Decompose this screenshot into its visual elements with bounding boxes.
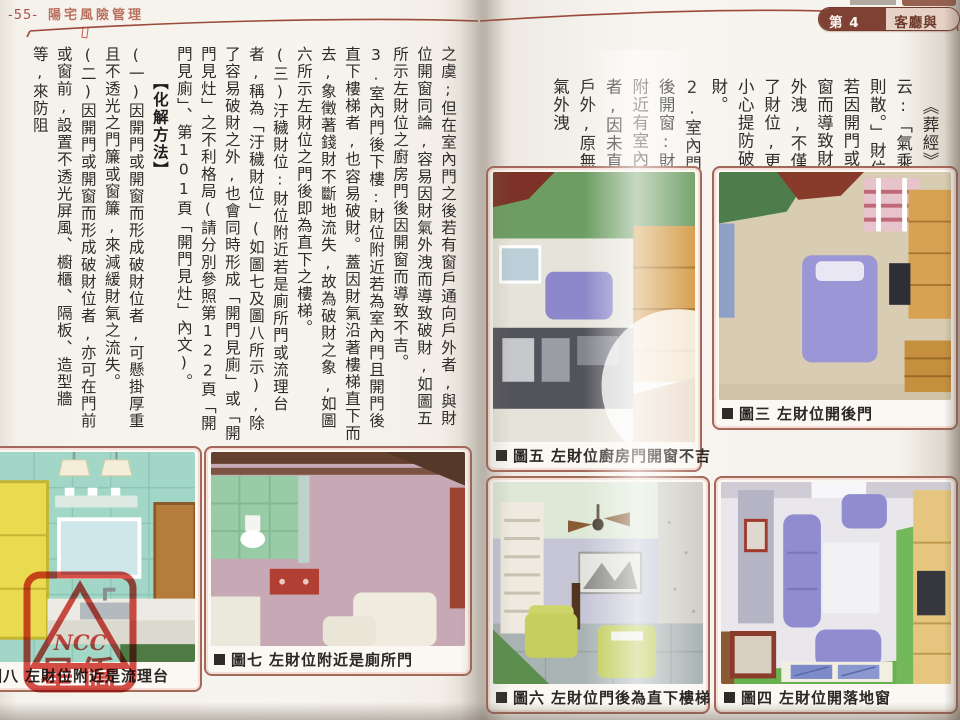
- figure-title: 左財位門後為直下樓梯: [551, 687, 711, 708]
- figure-title: 左財位開落地窗: [779, 687, 891, 708]
- caption-square-icon: [496, 450, 507, 461]
- paragraph: (三)汙穢財位:財位附近若是廁所門或流理台者,稱為「汙穢財位」(如圖七及圖八所示…: [172, 46, 292, 444]
- caption-square-icon: [724, 692, 735, 703]
- room-render-kitchen-window: [493, 172, 695, 442]
- caption-square-icon: [722, 408, 733, 419]
- page-top-fragment: [902, 0, 956, 6]
- figure-title: 左財位附近是廁所門: [269, 649, 413, 670]
- figure-4: 圖四 左財位開落地窗: [714, 476, 958, 714]
- figure-title: 左財位開後門: [777, 403, 873, 424]
- figure-title: 左財位附近是流理台: [25, 665, 169, 686]
- figure-label: 圖八: [0, 665, 19, 686]
- room-render-back-door: [719, 172, 951, 400]
- header-rule: [0, 0, 960, 44]
- figure-3: 圖三 左財位開後門: [712, 166, 958, 430]
- figure-label: 圖七: [231, 649, 263, 670]
- room-render-toilet-door: [211, 452, 465, 646]
- left-page-header: -55- 陽宅風險管理: [8, 4, 144, 23]
- room-render-stairs: [493, 482, 703, 684]
- figure-caption: 圖三 左財位開後門: [719, 400, 951, 424]
- figure-caption: 圖八 左財位附近是流理台: [0, 662, 195, 686]
- book-spread: -55- 陽宅風險管理 第 4 單元 客廳與書房 之虞;但在室內門之後若有窗戶通…: [0, 0, 960, 720]
- caption-square-icon: [496, 692, 507, 703]
- page-top-fragment: [850, 0, 896, 5]
- figure-caption: 圖四 左財位開落地窗: [721, 684, 951, 708]
- unit-badge: 第 4 單元 客廳與書房: [818, 7, 960, 31]
- paragraph: (二)因開門或開窗而形成破財位者,亦可在門前或窗前,設置不透光屏風、櫥櫃、隔板、…: [28, 46, 100, 444]
- figure-label: 圖五: [513, 445, 545, 466]
- figure-label: 圖四: [741, 687, 773, 708]
- figure-caption: 圖六 左財位門後為直下樓梯: [493, 684, 703, 708]
- left-page-text: 之虞;但在室內門之後若有窗戶通向戶外者,與財位開窗同論,容易因財氣外洩而導致破財…: [26, 46, 460, 444]
- figure-8: 圖八 左財位附近是流理台: [0, 446, 202, 692]
- room-render-kitchen-counter: [0, 452, 195, 662]
- figure-caption: 圖七 左財位附近是廁所門: [211, 646, 465, 670]
- section-heading: 【化解方法】: [148, 46, 172, 444]
- caption-square-icon: [214, 654, 225, 665]
- unit-number-label: 第 4 單元: [819, 8, 886, 30]
- figure-caption: 圖五 左財位廚房門開窗不吉: [493, 442, 695, 466]
- page-number: -55-: [8, 8, 38, 23]
- unit-title-label: 客廳與書房: [886, 8, 959, 30]
- paragraph: 之虞;但在室內門之後若有窗戶通向戶外者,與財位開窗同論,容易因財氣外洩而導致破財…: [388, 46, 460, 444]
- figure-5: 圖五 左財位廚房門開窗不吉: [486, 166, 702, 472]
- figure-title: 左財位廚房門開窗不吉: [551, 445, 711, 466]
- figure-label: 圖六: [513, 687, 545, 708]
- figure-label: 圖三: [739, 403, 771, 424]
- paragraph: (一)因開門或開窗而形成破財位者,可懸掛厚重且不透光之門簾或窗簾,來減緩財氣之流…: [100, 46, 148, 444]
- room-render-floor-window: [721, 482, 951, 684]
- book-title: 陽宅風險管理: [48, 4, 144, 23]
- figure-7: 圖七 左財位附近是廁所門: [204, 446, 472, 676]
- figure-6: 圖六 左財位門後為直下樓梯: [486, 476, 710, 714]
- paragraph: 3.室內門後下樓:財位附近若為室內門且開門後直下樓梯者,也容易破財。蓋因財氣沿著…: [292, 46, 388, 444]
